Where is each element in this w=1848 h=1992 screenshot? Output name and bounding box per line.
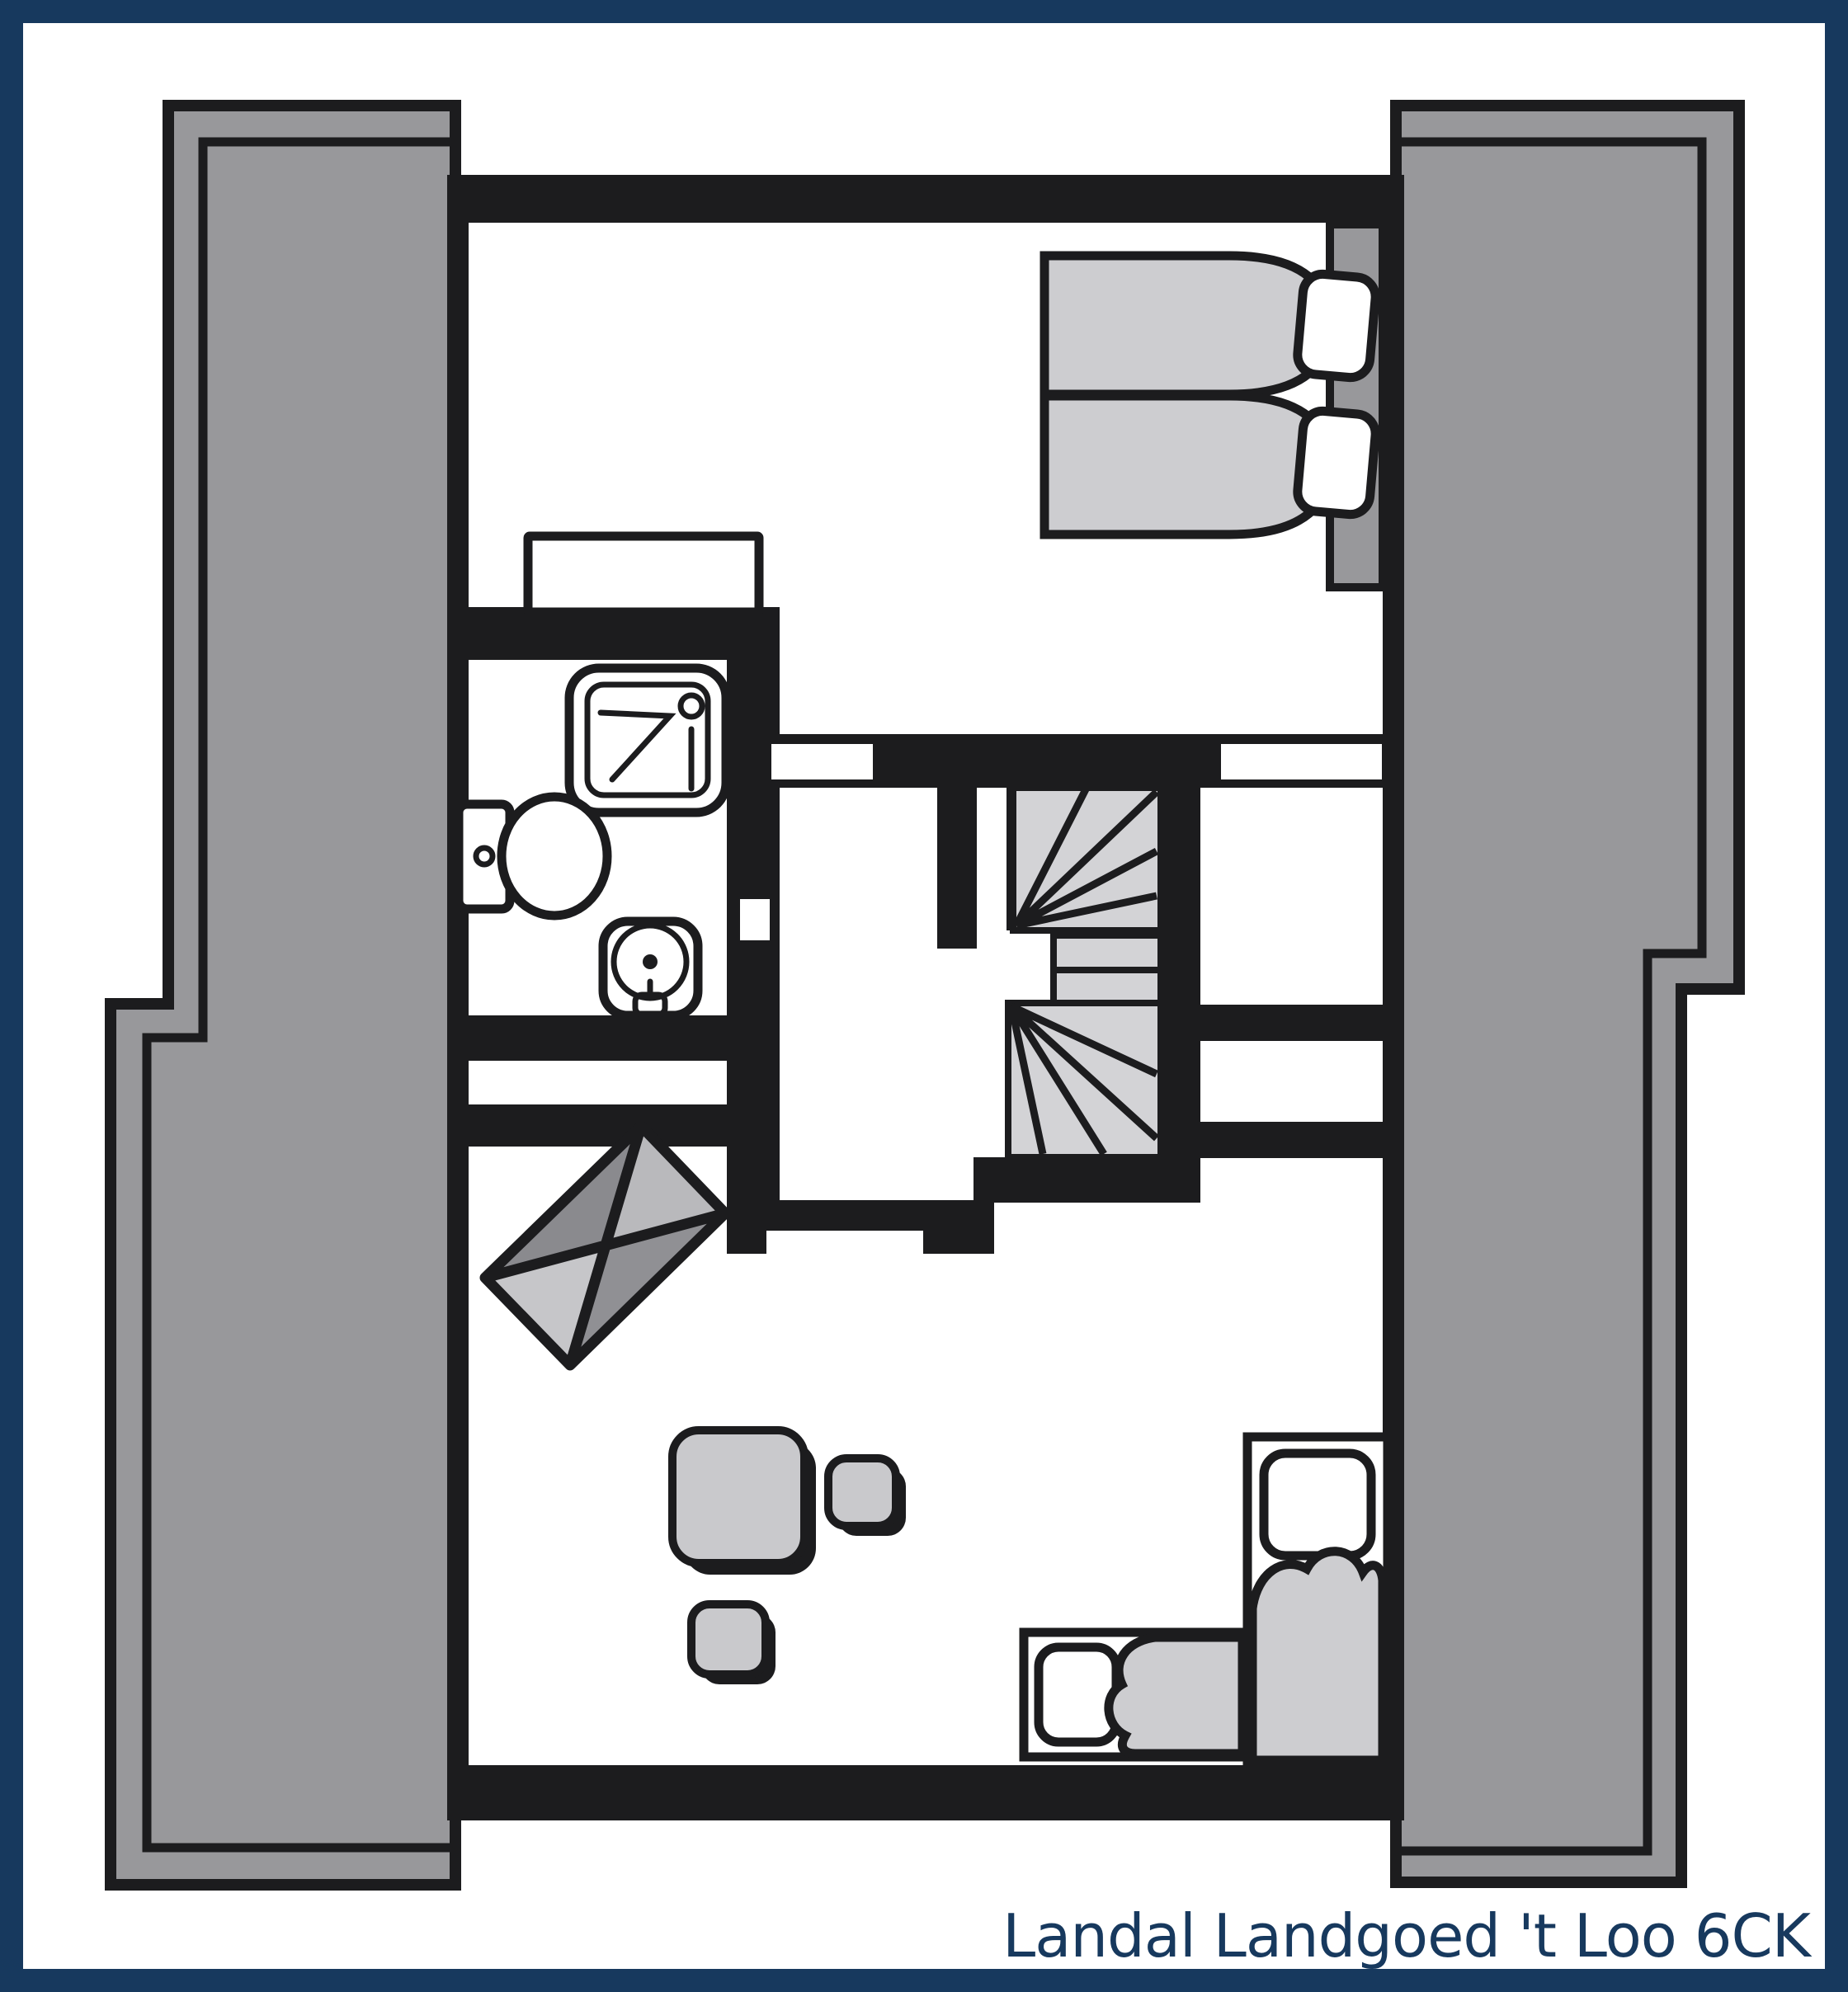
door-opening-living: [766, 1231, 923, 1254]
stool: [691, 1604, 775, 1684]
wall-bathroom-bottom: [447, 1015, 727, 1061]
bedroom-double-bed: [528, 224, 1383, 612]
bed-blanket: [1252, 1552, 1383, 1760]
stool: [828, 1458, 906, 1536]
floorplan-drawing: [0, 0, 1848, 1992]
staircase: [1008, 788, 1161, 1157]
wall-stair-stub: [937, 788, 977, 949]
shower-icon: [569, 668, 726, 812]
wall-hall-lower: [447, 1104, 727, 1147]
stair-tread: [1054, 935, 1161, 970]
stair-tread: [1054, 970, 1161, 1003]
bed-blanket: [1109, 1637, 1242, 1754]
bed-mattress: [1044, 396, 1330, 534]
dining-table: [672, 1430, 816, 1575]
wall-landing-lower: [1200, 1122, 1396, 1158]
wall-north: [447, 175, 1404, 223]
wall-landing-upper: [1200, 1005, 1396, 1041]
wall-south: [447, 1765, 1404, 1820]
floorplan-page: Landal Landgoed 't Loo 6CK: [0, 0, 1848, 1992]
bathroom: [459, 668, 726, 1015]
toilet-icon: [459, 797, 607, 916]
corner-bed-horizontal: [1024, 1632, 1247, 1757]
wall-stair-bottom: [973, 1157, 1200, 1203]
sink-icon: [603, 921, 698, 1015]
roof-left: [111, 106, 455, 1885]
door-opening-hall: [771, 744, 873, 779]
bed-mattress: [1044, 256, 1330, 394]
bed-pillow: [1296, 272, 1377, 379]
wall-stair-right: [1161, 788, 1200, 1203]
side-table: [485, 1126, 725, 1365]
wardrobe: [528, 536, 759, 612]
bed-pillow: [1296, 409, 1377, 516]
plan-caption: Landal Landgoed 't Loo 6CK: [1002, 1901, 1810, 1971]
bed-pillow: [1039, 1647, 1116, 1742]
door-opening-bathroom: [740, 899, 770, 940]
corner-bed-vertical: [1247, 1437, 1388, 1765]
door-opening-bedroom: [1221, 744, 1382, 779]
bed-pillow: [1264, 1453, 1371, 1556]
wall-west: [447, 175, 469, 1820]
roof-right: [1396, 106, 1739, 1882]
